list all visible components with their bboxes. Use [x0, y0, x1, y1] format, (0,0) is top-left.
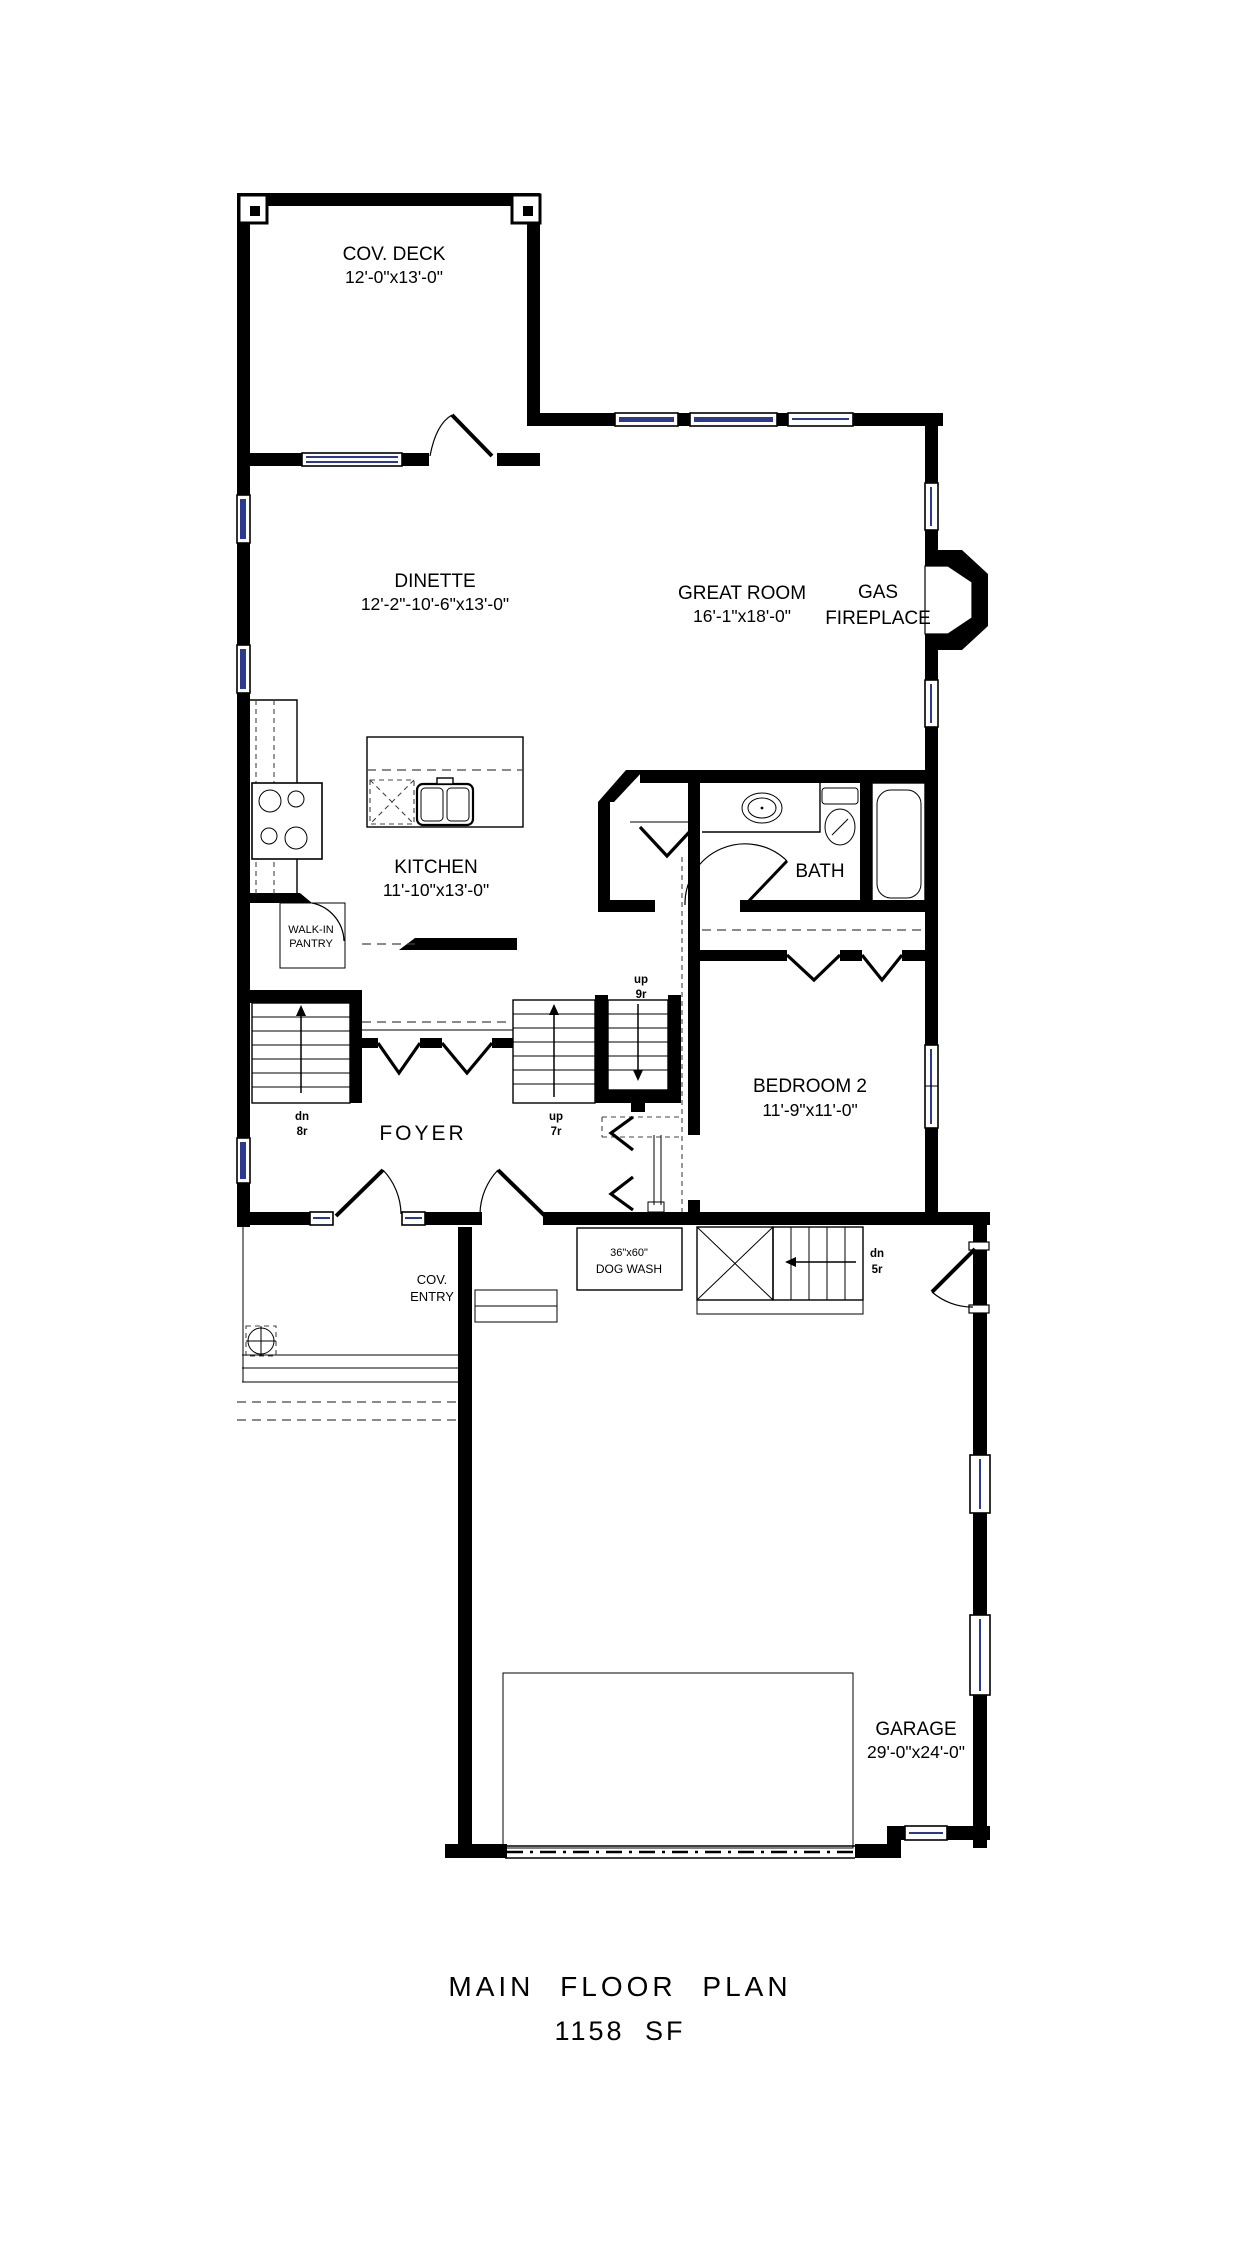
bifold-door	[640, 827, 694, 856]
gas-fireplace	[925, 550, 988, 650]
great-room-dims: 16'-1"x18'-0"	[693, 606, 791, 626]
dinette-label: DINETTE	[394, 571, 475, 592]
window	[925, 680, 938, 727]
plan-area: 1158 SF	[554, 2016, 685, 2046]
entry-door-right	[480, 1170, 545, 1216]
bedroom-hall	[602, 1117, 682, 1212]
bifold-door	[611, 1117, 633, 1150]
dishwasher	[370, 780, 414, 824]
bifold-door	[611, 1177, 633, 1210]
bath	[685, 783, 925, 905]
window	[925, 483, 938, 530]
stair-dn5r-label-1: dn	[870, 1248, 884, 1260]
island-sink	[417, 778, 473, 825]
window	[925, 1045, 938, 1128]
fireplace-label-2: FIREPLACE	[825, 608, 931, 629]
entry-door-left	[336, 1170, 401, 1216]
floor-plan-drawing: COV. DECK 12'-0"x13'-0" DINETTE 12'-2"-1…	[0, 0, 1240, 2250]
bifold-door	[787, 955, 840, 980]
garage-label: GARAGE	[875, 1719, 956, 1740]
stair-up-9r	[608, 1000, 668, 1090]
stair-dn5r-label-2: 5r	[872, 1264, 883, 1276]
window	[690, 413, 777, 426]
cov-entry-label-1: COV.	[417, 1272, 448, 1287]
cov-entry-label-2: ENTRY	[410, 1289, 454, 1304]
bath-label: BATH	[795, 861, 844, 882]
pantry-label-2: PANTRY	[289, 938, 333, 950]
kitchen-island	[367, 737, 523, 827]
porch-column	[246, 1326, 276, 1356]
floor-plan-sheet: COV. DECK 12'-0"x13'-0" DINETTE 12'-2"-1…	[0, 0, 1240, 2250]
bedroom2-label: BEDROOM 2	[753, 1076, 867, 1097]
stair-headers	[362, 944, 513, 1030]
cov-deck-label: COV. DECK	[343, 244, 446, 265]
interior-walls	[237, 770, 938, 1225]
window	[788, 413, 853, 426]
dog-wash-tub	[577, 1228, 682, 1290]
window	[237, 495, 250, 543]
window	[970, 1615, 990, 1695]
cov-entry-porch	[237, 1227, 458, 1420]
window	[237, 1138, 250, 1183]
window	[310, 1212, 333, 1225]
stair-up7r-label-2: 7r	[551, 1126, 562, 1138]
landing-platform	[697, 1227, 863, 1314]
window	[402, 1212, 425, 1225]
stair-up7r-label-1: up	[549, 1111, 563, 1123]
window	[615, 413, 678, 426]
stair-up-7r	[513, 1000, 595, 1103]
bifold-door	[862, 955, 902, 980]
vanity-sink	[702, 783, 820, 832]
kitchen-label: KITCHEN	[394, 857, 477, 878]
pantry-label-1: WALK-IN	[288, 924, 333, 936]
bedroom-door	[648, 1135, 664, 1212]
garage-dims: 29'-0"x24'-0"	[867, 1742, 965, 1762]
bifold-door	[442, 1043, 492, 1073]
window	[237, 645, 250, 693]
stair-dn-8r	[252, 1003, 350, 1103]
stair-dn8r-label-2: 8r	[297, 1126, 308, 1138]
stair-dn-5r	[773, 1227, 863, 1300]
toilet	[822, 788, 858, 845]
stair-up9r-label-2: 9r	[636, 989, 647, 1001]
bathtub	[872, 783, 925, 905]
window	[302, 453, 402, 466]
garage-slab	[503, 1673, 853, 1848]
dinette-dims: 12'-2"-10'-6"x13'-0"	[361, 594, 509, 614]
window	[905, 1826, 947, 1840]
dog-wash-label: DOG WASH	[596, 1262, 662, 1276]
fireplace-label-1: GAS	[858, 582, 898, 603]
kitchen-dims: 11'-10"x13'-0"	[383, 880, 489, 900]
dog-wash-size: 36"x60"	[610, 1247, 648, 1259]
bifold-door	[378, 1043, 420, 1073]
great-room-label: GREAT ROOM	[678, 583, 806, 604]
bedroom2-dims: 11'-9"x11'-0"	[762, 1100, 857, 1120]
hall-steps	[475, 1290, 557, 1322]
plan-title: MAIN FLOOR PLAN	[448, 1971, 791, 2002]
hall-closet	[630, 822, 694, 1212]
stair-up9r-label-1: up	[634, 974, 648, 986]
cov-deck-dims: 12'-0"x13'-0"	[345, 267, 443, 287]
window	[970, 1455, 990, 1513]
foyer-label: FOYER	[379, 1122, 466, 1145]
bath-door	[685, 844, 787, 905]
deck-door	[430, 415, 492, 456]
cooktop	[252, 783, 322, 859]
stair-dn8r-label-1: dn	[295, 1111, 309, 1123]
